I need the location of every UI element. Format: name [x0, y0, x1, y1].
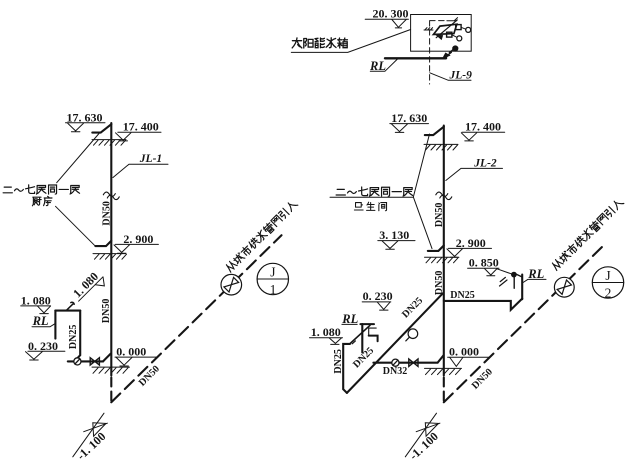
svg-text:-1. 100: -1. 100 [74, 429, 108, 461]
svg-text:J: J [270, 265, 275, 280]
svg-text:17. 400: 17. 400 [123, 119, 159, 133]
svg-text:17. 400: 17. 400 [465, 119, 501, 133]
svg-text:DN25: DN25 [333, 349, 344, 373]
svg-text:RL: RL [32, 314, 49, 328]
svg-text:2: 2 [605, 285, 612, 300]
svg-text:JL-1: JL-1 [139, 153, 162, 165]
svg-text:-1. 100: -1. 100 [406, 429, 440, 461]
svg-text:J: J [605, 268, 610, 283]
svg-text:0. 230: 0. 230 [28, 339, 58, 353]
svg-text:DN50: DN50 [101, 299, 112, 323]
svg-text:17. 630: 17. 630 [67, 110, 103, 124]
svg-text:RL: RL [341, 312, 358, 326]
svg-text:3. 130: 3. 130 [379, 228, 409, 242]
svg-text:JL-9: JL-9 [449, 70, 473, 82]
svg-text:0. 230: 0. 230 [363, 289, 393, 303]
svg-text:JL-2: JL-2 [473, 157, 497, 169]
svg-text:2. 900: 2. 900 [456, 236, 486, 250]
svg-text:0. 000: 0. 000 [449, 345, 479, 359]
svg-text:1. 080: 1. 080 [311, 325, 341, 339]
svg-text:DN50: DN50 [470, 367, 495, 392]
svg-text:RL: RL [369, 59, 386, 73]
svg-text:20. 300: 20. 300 [373, 7, 409, 21]
svg-text:DN50: DN50 [434, 203, 445, 227]
svg-text:DN25: DN25 [450, 290, 474, 301]
svg-text:DN32: DN32 [383, 366, 407, 377]
svg-text:RL: RL [527, 267, 544, 281]
svg-text:0. 850: 0. 850 [469, 255, 499, 269]
svg-text:DN50: DN50 [101, 201, 112, 225]
svg-text:1: 1 [270, 282, 277, 297]
svg-text:DN50: DN50 [434, 271, 445, 295]
svg-text:2. 900: 2. 900 [123, 232, 153, 246]
svg-text:DN25: DN25 [68, 325, 79, 349]
svg-text:DN50: DN50 [137, 364, 162, 389]
svg-text:17. 630: 17. 630 [391, 111, 427, 125]
